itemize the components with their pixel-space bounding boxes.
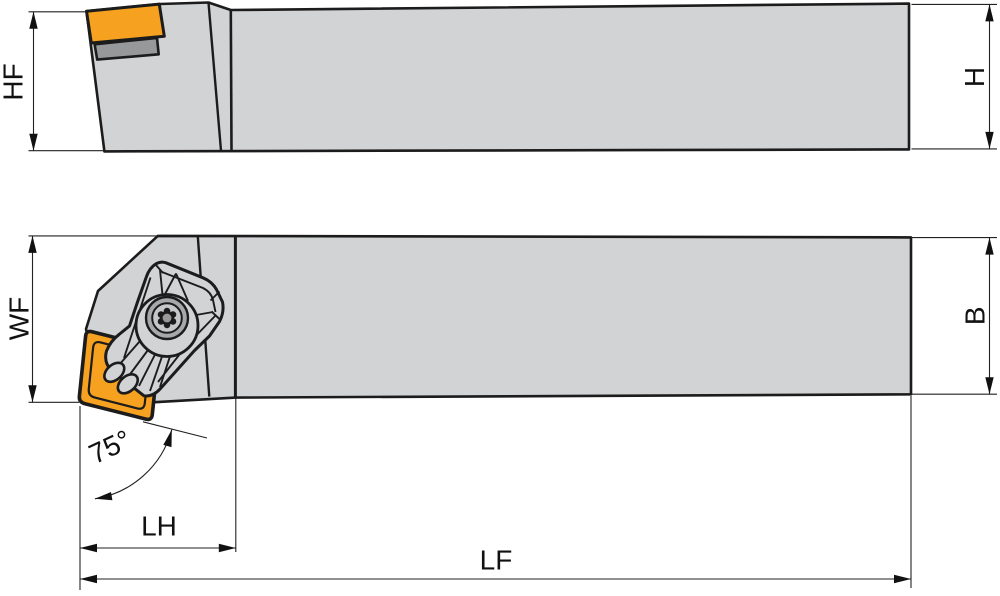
svg-text:WF: WF	[3, 297, 34, 341]
svg-text:LH: LH	[141, 510, 177, 541]
svg-text:HF: HF	[0, 63, 29, 100]
svg-text:LF: LF	[480, 545, 513, 576]
svg-text:H: H	[959, 67, 990, 87]
svg-text:B: B	[959, 306, 990, 325]
